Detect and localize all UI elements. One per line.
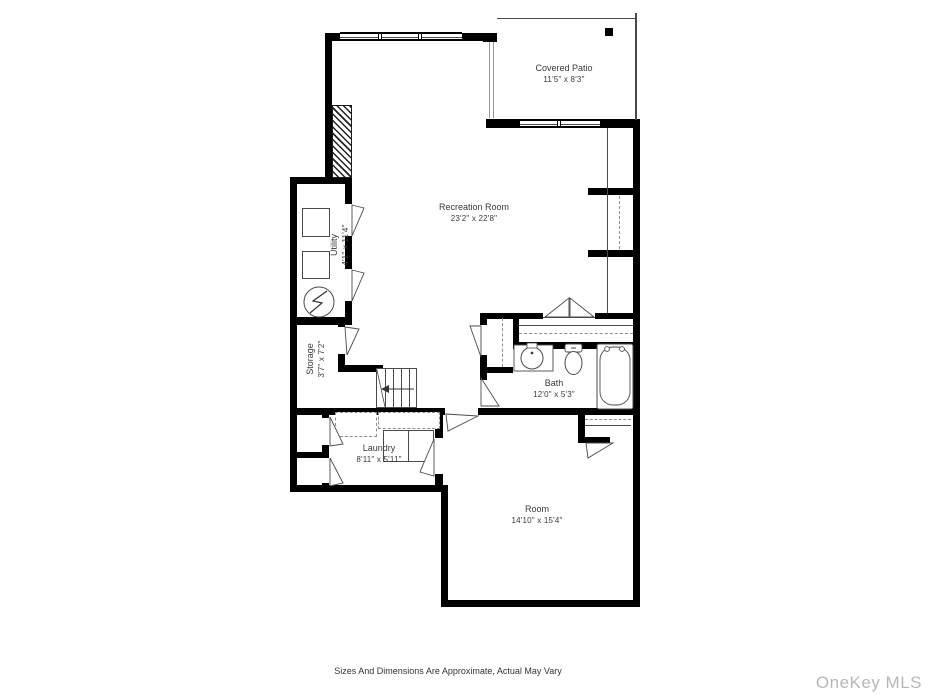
- stair-tread: [409, 368, 410, 408]
- stair-tread: [385, 368, 386, 408]
- disclaimer-text: Sizes And Dimensions Are Approximate, Ac…: [283, 666, 613, 676]
- wall: [578, 437, 610, 443]
- window-mullion: [418, 34, 422, 39]
- closet-shelf-dashed: [519, 333, 633, 334]
- stair-tread: [401, 368, 402, 408]
- room-name: Laundry: [319, 443, 439, 454]
- closet-shelf-dashed: [502, 318, 503, 367]
- wall: [290, 177, 297, 492]
- wall: [338, 317, 345, 327]
- room-name: Utility: [329, 195, 340, 295]
- chimney-hatch: [332, 105, 352, 178]
- room-name: Covered Patio: [484, 63, 644, 74]
- room-label-storage: Storage 3'7" x 7'2": [305, 309, 327, 409]
- counter-dashed: [378, 412, 440, 429]
- room-dimensions: 12'0" x 5'3": [494, 389, 614, 400]
- door-swing: [345, 327, 359, 355]
- room-dimensions: 11'5" x 8'3": [484, 74, 644, 85]
- wall: [600, 119, 640, 128]
- toilet-icon: [565, 352, 582, 375]
- wall: [588, 250, 633, 257]
- closet-front-line: [543, 317, 595, 318]
- door-swing: [570, 298, 594, 317]
- closet-shelf-dashed: [585, 419, 631, 420]
- room-dimensions: 3'7" x 7'2": [316, 309, 327, 409]
- patio-post: [605, 28, 613, 36]
- plan-symbols: [0, 0, 930, 697]
- wall: [441, 485, 448, 607]
- closet-front-line: [607, 128, 608, 313]
- door-swing: [446, 414, 478, 431]
- room-name: Bath: [494, 378, 614, 389]
- room-label-recreation: Recreation Room 23'2" x 22'8": [394, 202, 554, 224]
- door-swing: [545, 298, 569, 317]
- room-name: Room: [457, 504, 617, 515]
- wall: [483, 33, 497, 42]
- room-label-bath: Bath 12'0" x 5'3": [494, 378, 614, 400]
- wall: [295, 452, 322, 458]
- stairs: [376, 368, 417, 408]
- wall: [460, 33, 483, 41]
- sink-icon: [521, 347, 543, 369]
- wall: [322, 408, 329, 418]
- closet-front-line: [519, 325, 633, 326]
- room-label-laundry: Laundry 8'11" x 5'11": [319, 443, 439, 465]
- window-glass-line: [340, 37, 462, 38]
- room-name: Recreation Room: [394, 202, 554, 213]
- room-label-utility: Utility 4'1" x 11'4": [329, 195, 351, 295]
- wall: [588, 188, 633, 195]
- room-dimensions: 4'1" x 11'4": [340, 195, 351, 295]
- wall: [633, 120, 640, 607]
- wall: [480, 367, 513, 373]
- appliance-box-icon: [302, 208, 330, 237]
- patio-edge: [497, 18, 636, 19]
- closet-rod-dashed: [619, 196, 620, 249]
- wall: [441, 600, 640, 607]
- room-dimensions: 8'11" x 5'11": [319, 454, 439, 465]
- stair-tread: [393, 368, 394, 408]
- wall: [595, 313, 633, 319]
- window: [520, 119, 600, 128]
- wall: [290, 177, 352, 184]
- room-dimensions: 23'2" x 22'8": [394, 213, 554, 224]
- wall: [513, 342, 633, 349]
- wall: [290, 485, 448, 492]
- room-label-room: Room 14'10" x 15'4": [457, 504, 617, 526]
- stairs-below-dashed: [335, 412, 377, 437]
- wall: [478, 408, 633, 415]
- closet-front-line: [585, 425, 631, 426]
- room-label-patio: Covered Patio 11'5" x 8'3": [484, 63, 644, 85]
- door-swing: [470, 326, 481, 357]
- wall: [486, 119, 520, 128]
- door-swing: [586, 443, 613, 458]
- wall: [325, 33, 332, 183]
- floor-plan: Recreation Room 23'2" x 22'8" Covered Pa…: [0, 0, 930, 697]
- room-name: Storage: [305, 309, 316, 409]
- room-dimensions: 14'10" x 15'4": [457, 515, 617, 526]
- door-swing: [352, 205, 364, 236]
- appliance-box-icon: [302, 251, 330, 279]
- sink-drain: [531, 352, 534, 355]
- window: [340, 32, 462, 41]
- door-swing: [352, 270, 364, 301]
- window-mullion: [557, 121, 561, 126]
- window-mullion: [378, 34, 382, 39]
- wall: [480, 313, 487, 325]
- wall: [480, 313, 543, 319]
- watermark: OneKey MLS: [816, 673, 922, 693]
